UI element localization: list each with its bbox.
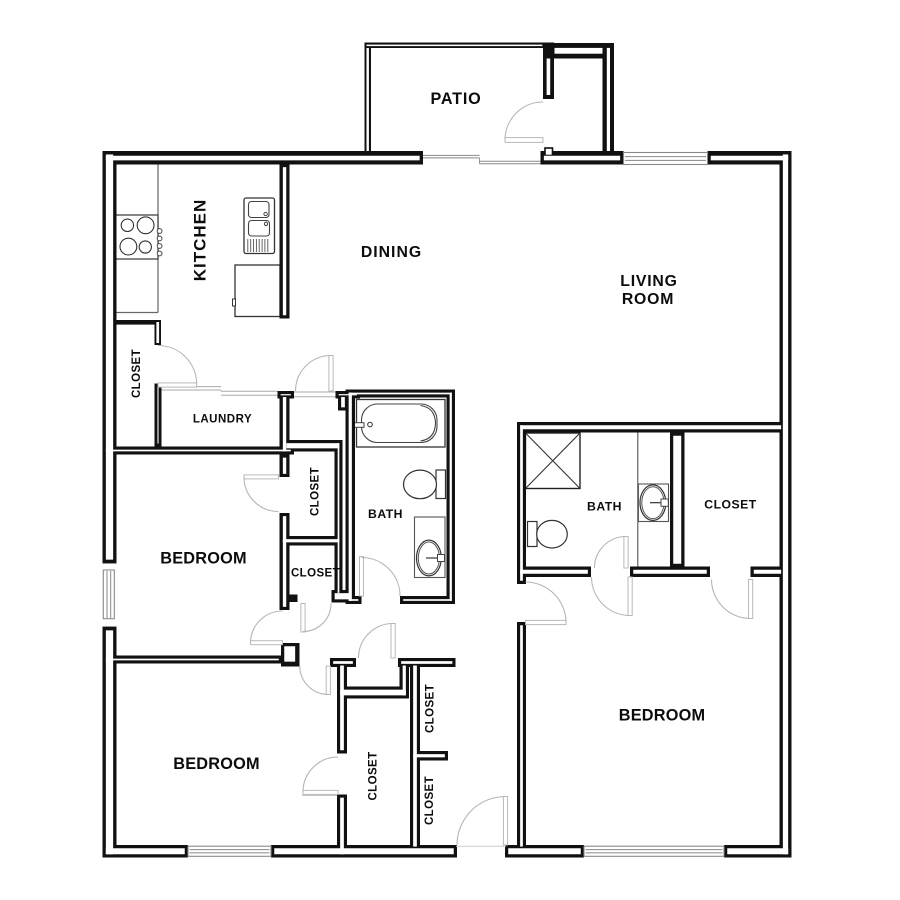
svg-text:ROOM: ROOM <box>622 291 674 308</box>
svg-text:CLOSET: CLOSET <box>310 467 322 516</box>
svg-text:CLOSET: CLOSET <box>424 776 436 825</box>
svg-text:CLOSET: CLOSET <box>704 497 756 511</box>
svg-text:KITCHEN: KITCHEN <box>191 199 210 282</box>
svg-text:BEDROOM: BEDROOM <box>619 706 705 724</box>
svg-text:CLOSET: CLOSET <box>291 568 340 580</box>
svg-text:CLOSET: CLOSET <box>368 751 380 800</box>
svg-text:BATH: BATH <box>368 507 403 521</box>
svg-text:BEDROOM: BEDROOM <box>173 755 259 773</box>
svg-text:BEDROOM: BEDROOM <box>160 549 246 567</box>
svg-text:CLOSET: CLOSET <box>131 349 143 398</box>
svg-text:CLOSET: CLOSET <box>425 684 437 733</box>
svg-text:DINING: DINING <box>361 244 422 261</box>
svg-text:PATIO: PATIO <box>430 90 481 108</box>
svg-text:BATH: BATH <box>587 499 622 513</box>
svg-text:LIVING: LIVING <box>620 273 677 290</box>
svg-text:LAUNDRY: LAUNDRY <box>193 414 252 426</box>
